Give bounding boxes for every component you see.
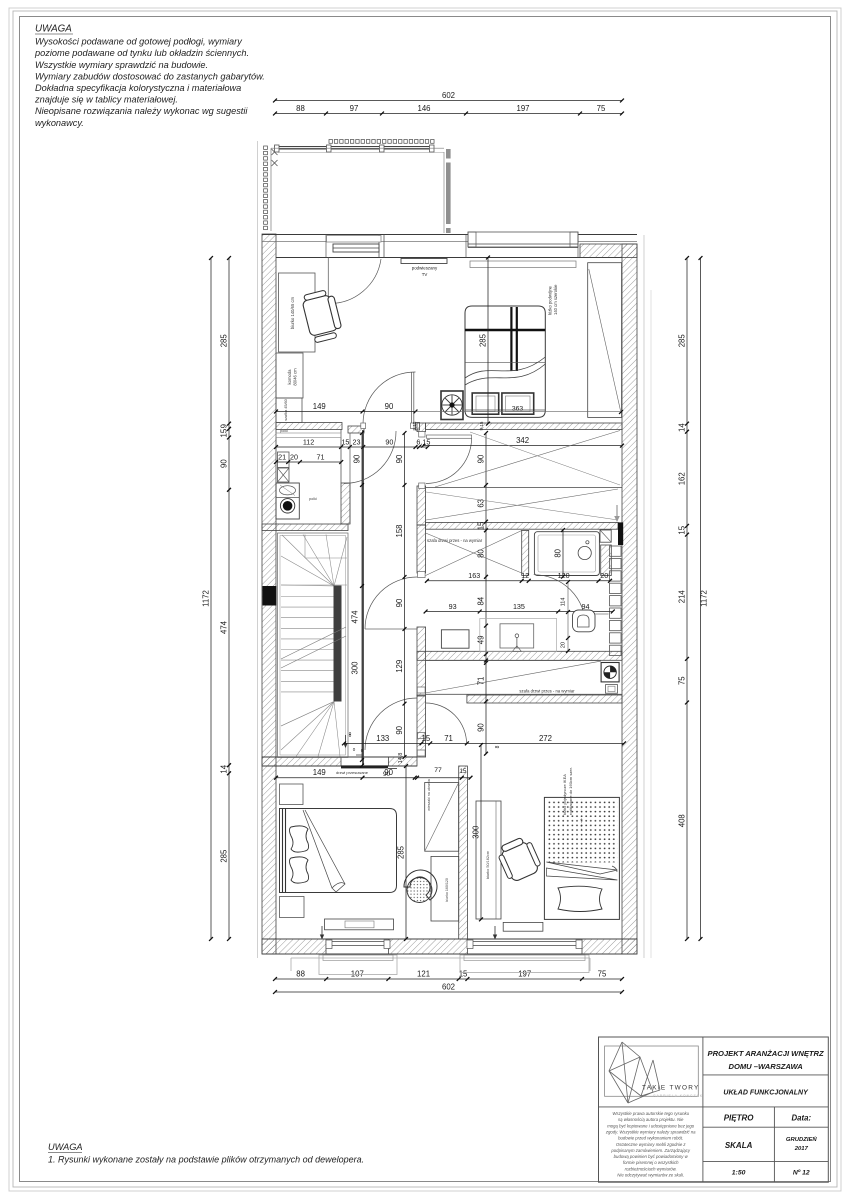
svg-text:77: 77: [434, 767, 442, 774]
svg-text:drzwi przesuwane: drzwi przesuwane: [336, 770, 369, 775]
svg-text:163: 163: [468, 571, 480, 580]
svg-text:71: 71: [317, 452, 325, 461]
svg-text:Ostateczne wymiary mebli zgodn: Ostateczne wymiary mebli zgodnie z: [616, 1142, 687, 1147]
svg-text:9,15: 9,15: [412, 421, 417, 430]
svg-text:14,8: 14,8: [398, 753, 404, 764]
svg-text:20: 20: [290, 452, 298, 461]
svg-text:90: 90: [476, 723, 485, 732]
svg-text:UWAGA: UWAGA: [35, 24, 72, 35]
svg-text:zgody. Wszystkie wymiary należ: zgody. Wszystkie wymiary należy sprawdzi…: [605, 1129, 696, 1134]
svg-text:Data:: Data:: [792, 1114, 812, 1123]
svg-text:8: 8: [495, 745, 501, 748]
svg-text:285: 285: [219, 334, 228, 348]
svg-text:Nie odczytywać wymiarów ze ska: Nie odczytywać wymiarów ze skali.: [617, 1173, 684, 1178]
svg-text:GABRIELA KONCZAK: GABRIELA KONCZAK: [653, 1094, 703, 1098]
svg-text:14: 14: [219, 764, 228, 773]
svg-text:są własnością autora projektu.: są własnością autora projektu. Nie: [618, 1117, 684, 1122]
svg-text:90: 90: [352, 454, 361, 463]
svg-text:133: 133: [376, 734, 389, 743]
svg-text:88: 88: [296, 104, 305, 113]
svg-text:12: 12: [521, 571, 529, 580]
svg-text:15: 15: [341, 437, 349, 446]
svg-text:20: 20: [561, 642, 567, 648]
svg-text:szafka 45/60: szafka 45/60: [284, 399, 288, 421]
svg-text:75: 75: [677, 676, 686, 685]
svg-text:135: 135: [513, 602, 525, 611]
svg-text:1. Rysunki wykonane zostały na: 1. Rysunki wykonane zostały na podstawie…: [48, 1155, 364, 1165]
svg-text:75: 75: [598, 969, 607, 978]
svg-text:140 cm szerokie: 140 cm szerokie: [553, 284, 558, 315]
svg-text:15: 15: [677, 525, 686, 534]
svg-text:197: 197: [518, 969, 531, 978]
svg-text:474: 474: [351, 610, 360, 624]
svg-text:75: 75: [597, 104, 606, 113]
svg-text:łóżko podwójne: łóżko podwójne: [548, 285, 553, 315]
svg-text:71: 71: [476, 677, 485, 686]
svg-text:90: 90: [395, 725, 404, 734]
svg-text:90: 90: [384, 768, 393, 777]
svg-text:UWAGA: UWAGA: [48, 1142, 83, 1152]
svg-text:UKŁAD FUNKCJONALNY: UKŁAD FUNKCJONALNY: [723, 1090, 809, 1097]
svg-text:polki: polki: [280, 429, 288, 433]
svg-text:285: 285: [478, 333, 487, 347]
svg-text:80/46 cm: 80/46 cm: [293, 368, 298, 386]
svg-text:szafa drzwi przes - na wymiar: szafa drzwi przes - na wymiar: [427, 538, 483, 543]
svg-text:90: 90: [385, 402, 394, 411]
svg-text:21: 21: [278, 452, 286, 461]
svg-text:158: 158: [395, 524, 404, 537]
svg-text:408: 408: [677, 814, 686, 827]
svg-text:rozkładane do 160cm szer.: rozkładane do 160cm szer.: [568, 767, 573, 815]
svg-text:1172: 1172: [201, 590, 210, 607]
svg-text:146: 146: [417, 104, 430, 113]
svg-text:PIĘTRO: PIĘTRO: [724, 1114, 755, 1123]
svg-text:mogą być kopiowane i udostępni: mogą być kopiowane i udostępniane bez je…: [607, 1123, 695, 1128]
svg-text:285: 285: [396, 845, 405, 859]
svg-text:wieszaki na ubrania: wieszaki na ubrania: [427, 779, 431, 811]
svg-text:162: 162: [677, 472, 686, 485]
svg-text:wykonawcy.: wykonawcy.: [35, 118, 84, 128]
svg-text:TV: TV: [422, 272, 428, 277]
svg-text:285: 285: [677, 334, 686, 348]
svg-text:23: 23: [353, 437, 361, 446]
svg-text:Wysokości podawane od gotowej: Wysokości podawane od gotowej podłogi, w…: [35, 37, 243, 47]
svg-text:149: 149: [313, 402, 326, 411]
svg-text:97: 97: [350, 104, 359, 113]
svg-text:602: 602: [442, 91, 455, 100]
svg-text:polki: polki: [309, 497, 317, 501]
svg-text:znajduje się w tablicy materia: znajduje się w tablicy materiałowej.: [34, 95, 178, 105]
svg-text:TAKIE TWORY: TAKIE TWORY: [642, 1085, 700, 1092]
svg-text:biurko 160/120: biurko 160/120: [445, 878, 449, 902]
svg-text:121: 121: [417, 969, 430, 978]
svg-text:GRUDZIEŃ: GRUDZIEŃ: [786, 1136, 818, 1143]
svg-text:formie pisemnej o wszystkich: formie pisemnej o wszystkich: [623, 1160, 679, 1165]
svg-text:88: 88: [296, 969, 305, 978]
svg-text:90: 90: [385, 437, 393, 446]
svg-text:300: 300: [471, 825, 480, 839]
svg-text:107: 107: [351, 969, 364, 978]
svg-text:2017: 2017: [794, 1146, 809, 1152]
svg-text:9: 9: [219, 424, 228, 428]
svg-text:PROJEKT ARANŻACJI WNĘTRZ: PROJEKT ARANŻACJI WNĘTRZ: [708, 1049, 825, 1058]
svg-text:SKALA: SKALA: [725, 1141, 753, 1150]
svg-text:129: 129: [395, 660, 404, 673]
svg-text:budowie przed wykonaniem robót: budowie przed wykonaniem robót.: [618, 1136, 683, 1141]
svg-text:90: 90: [395, 454, 404, 463]
svg-text:474: 474: [219, 620, 228, 634]
svg-text:Nº 12: Nº 12: [793, 1170, 810, 1177]
svg-text:80: 80: [553, 548, 562, 557]
svg-text:90: 90: [395, 598, 404, 607]
svg-text:DOMU –WARSZAWA: DOMU –WARSZAWA: [728, 1062, 802, 1071]
svg-text:podwieszany: podwieszany: [412, 266, 438, 271]
svg-text:Wymiary zabudów dostosować do: Wymiary zabudów dostosować do zastanych …: [35, 71, 265, 81]
svg-text:Wszystkie wymiary sprawdzić na: Wszystkie wymiary sprawdzić na budowie.: [35, 60, 208, 70]
svg-text:49: 49: [476, 636, 485, 645]
svg-text:budową powinien być powiadomio: budową powinien być powiadomiony w: [614, 1154, 689, 1159]
svg-text:149: 149: [313, 768, 326, 777]
svg-text:272: 272: [539, 734, 552, 743]
svg-text:podpisanym zamówieniem. Zarząd: podpisanym zamówieniem. Zarządzający: [610, 1148, 690, 1153]
svg-text:602: 602: [442, 982, 455, 991]
svg-text:poziome podawane od tynku lub: poziome podawane od tynku lub okładzin ś…: [34, 48, 249, 58]
svg-text:szafa drzwi przes - na wymiar: szafa drzwi przes - na wymiar: [519, 688, 575, 693]
svg-text:- + - +: - + - +: [579, 818, 584, 830]
svg-text:15: 15: [476, 521, 485, 530]
svg-text:80: 80: [476, 549, 485, 558]
svg-text:71: 71: [444, 734, 453, 743]
svg-text:1172: 1172: [700, 590, 709, 607]
svg-text:90: 90: [476, 454, 485, 463]
svg-text:1:50: 1:50: [732, 1170, 746, 1177]
svg-text:93: 93: [449, 602, 457, 611]
svg-text:komoda: komoda: [287, 369, 292, 385]
svg-text:14: 14: [677, 423, 686, 432]
svg-text:84: 84: [476, 596, 485, 605]
svg-text:197: 197: [516, 104, 529, 113]
svg-text:214: 214: [677, 590, 686, 604]
svg-text:Dokładna specyfikacja koloryst: Dokładna specyfikacja kolorystyczna i ma…: [35, 83, 241, 93]
svg-text:20: 20: [600, 571, 608, 580]
svg-text:rozbieżnościach wymiarów.: rozbieżnościach wymiarów.: [625, 1166, 677, 1171]
svg-text:300: 300: [351, 661, 360, 675]
svg-text:łóżko pojedyncze IKEA: łóżko pojedyncze IKEA: [562, 774, 567, 815]
svg-text:Wszystkie prawa autorskie tego: Wszystkie prawa autorskie tego rysunku: [612, 1111, 689, 1116]
svg-text:342: 342: [516, 436, 529, 445]
svg-text:112: 112: [303, 437, 314, 446]
svg-text:90: 90: [219, 459, 228, 468]
svg-text:15: 15: [219, 428, 228, 437]
svg-text:15: 15: [422, 734, 431, 743]
svg-text:15: 15: [460, 769, 467, 775]
svg-text:Nieopisane rozwiązania należy: Nieopisane rozwiązania należy wykonac wg…: [35, 106, 248, 116]
svg-text:114: 114: [561, 598, 567, 607]
svg-text:285: 285: [219, 849, 228, 863]
svg-text:biurko 50/162cm: biurko 50/162cm: [486, 851, 490, 879]
svg-text:biurko 140/65 cm: biurko 140/65 cm: [290, 296, 295, 329]
svg-text:9,15: 9,15: [479, 421, 484, 430]
